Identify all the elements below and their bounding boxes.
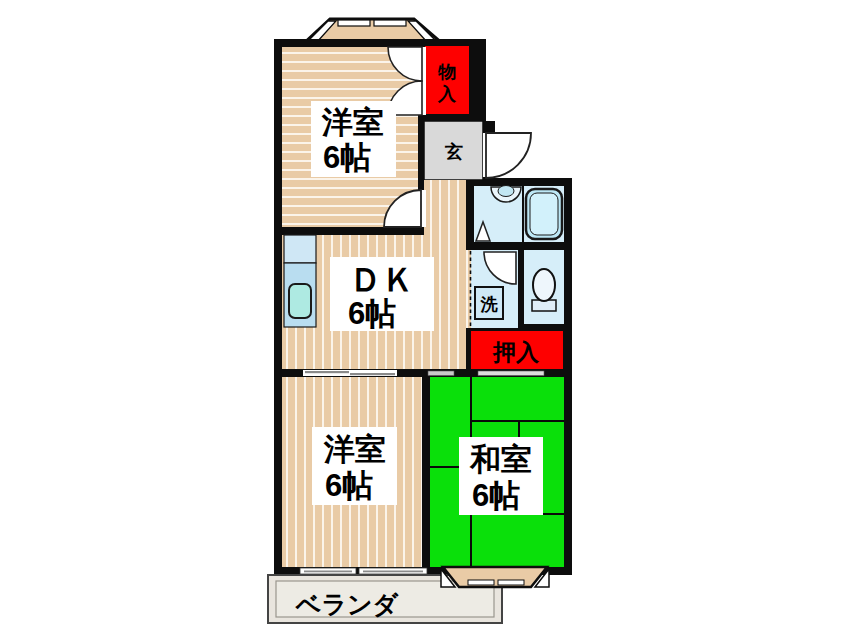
room-name: 洋室 [321,105,384,140]
room-name: 和室 [469,442,532,477]
veranda-label: ベランダ [295,590,400,618]
room-size: 6帖 [472,478,520,513]
label-dk: ＤＫ 6帖 [330,257,434,331]
room-size: 6帖 [323,140,371,175]
hall-to-washroom-floor [462,250,471,328]
room-size: 6帖 [348,296,396,331]
laundry-label: 洗 [480,295,499,314]
room-name: 洋室 [323,432,386,467]
label-western-top: 洋室 6帖 [311,101,396,177]
entrance-label: 玄 [444,142,463,162]
monoire-char-2: 入 [437,84,457,104]
label-western-bottom: 洋室 6帖 [312,427,397,505]
sliding-door-dk-japanese [428,371,454,376]
closet-label: 押入 [492,339,540,365]
bathtub-icon [526,189,562,239]
laundry-box: 洗 [475,287,503,319]
hallway-floor [424,180,466,235]
room-size: 6帖 [325,468,373,503]
kitchen-sink-icon [289,284,311,318]
label-japanese-room: 和室 6帖 [459,437,543,515]
room-name: ＤＫ [349,261,415,298]
fusuma-oshiire [478,371,544,376]
bay-window-bottom [441,567,549,587]
kitchen-counter-icon [284,235,316,327]
monoire-char-1: 物 [437,62,456,82]
sliding-door-dk-west [303,370,397,376]
veranda-window-doors [300,568,427,574]
floor-plan: 洗 ベランダ [0,0,846,634]
entrance-door-icon [483,133,531,178]
floor-plan-page: 洗 ベランダ [0,0,846,634]
toilet-icon [532,269,556,311]
